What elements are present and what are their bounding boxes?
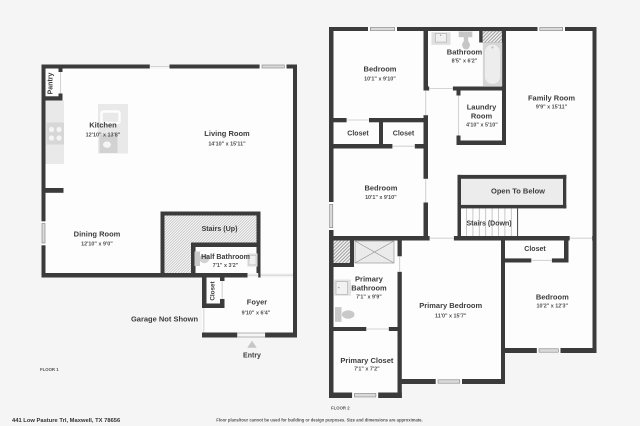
svg-text:14'10" x 15'11": 14'10" x 15'11"	[208, 142, 246, 148]
svg-text:11'0" x 15'7": 11'0" x 15'7"	[435, 313, 467, 319]
svg-text:12'10" x 13'8": 12'10" x 13'8"	[86, 133, 121, 139]
svg-text:Stairs (Up): Stairs (Up)	[202, 225, 239, 233]
svg-text:Family Room: Family Room	[528, 93, 575, 102]
svg-text:Primary: Primary	[355, 275, 384, 284]
svg-text:Entry: Entry	[243, 353, 261, 360]
svg-text:Pantry: Pantry	[48, 73, 55, 95]
svg-text:Room: Room	[471, 112, 493, 121]
svg-text:10'1" x 9'10": 10'1" x 9'10"	[364, 77, 396, 83]
svg-text:Laundry: Laundry	[467, 103, 497, 112]
svg-text:Closet: Closet	[393, 131, 415, 138]
svg-text:7'1" x 3'2": 7'1" x 3'2"	[213, 263, 239, 269]
svg-text:Closet: Closet	[524, 246, 546, 253]
svg-text:Bathroom: Bathroom	[447, 48, 483, 57]
svg-text:Bedroom: Bedroom	[364, 184, 397, 193]
svg-text:Floor plans/tour cannot be use: Floor plans/tour cannot be used for buil…	[216, 417, 422, 422]
svg-text:9'10" x 6'4": 9'10" x 6'4"	[242, 311, 271, 317]
svg-text:Closet: Closet	[347, 131, 369, 138]
svg-text:Garage Not Shown: Garage Not Shown	[131, 315, 199, 324]
svg-text:Closet: Closet	[210, 280, 217, 300]
svg-text:Primary Bedroom: Primary Bedroom	[419, 301, 482, 310]
svg-text:10'1" x 9'10": 10'1" x 9'10"	[365, 195, 397, 201]
svg-text:Bathroom: Bathroom	[351, 284, 387, 293]
svg-text:12'10" x 9'0": 12'10" x 9'0"	[81, 242, 113, 248]
svg-text:Foyer: Foyer	[247, 298, 268, 307]
svg-text:Dining Room: Dining Room	[74, 230, 121, 239]
svg-text:Half Bathroom: Half Bathroom	[201, 253, 250, 261]
svg-text:Open To Below: Open To Below	[491, 187, 545, 196]
svg-text:7'1" x 9'9": 7'1" x 9'9"	[356, 294, 382, 300]
svg-text:Bedroom: Bedroom	[364, 65, 397, 74]
svg-text:8'5" x 6'2": 8'5" x 6'2"	[452, 59, 478, 65]
svg-text:7'1" x 7'2": 7'1" x 7'2"	[354, 367, 380, 373]
svg-text:FLOOR 1: FLOOR 1	[40, 367, 59, 372]
svg-text:Kitchen: Kitchen	[89, 121, 117, 130]
svg-text:Bedroom: Bedroom	[536, 293, 569, 302]
svg-text:Stairs (Down): Stairs (Down)	[466, 220, 511, 227]
svg-text:FLOOR 2: FLOOR 2	[331, 406, 350, 411]
svg-text:10'2" x 12'3": 10'2" x 12'3"	[536, 304, 568, 310]
svg-text:Living Room: Living Room	[204, 129, 250, 138]
svg-text:4'10" x 5'10": 4'10" x 5'10"	[466, 123, 498, 129]
svg-text:Primary Closet: Primary Closet	[340, 356, 393, 365]
svg-text:441 Low Pasture Trl, Maxwell,: 441 Low Pasture Trl, Maxwell, TX 78656	[12, 418, 121, 424]
svg-text:9'9" x 15'11": 9'9" x 15'11"	[536, 105, 568, 111]
